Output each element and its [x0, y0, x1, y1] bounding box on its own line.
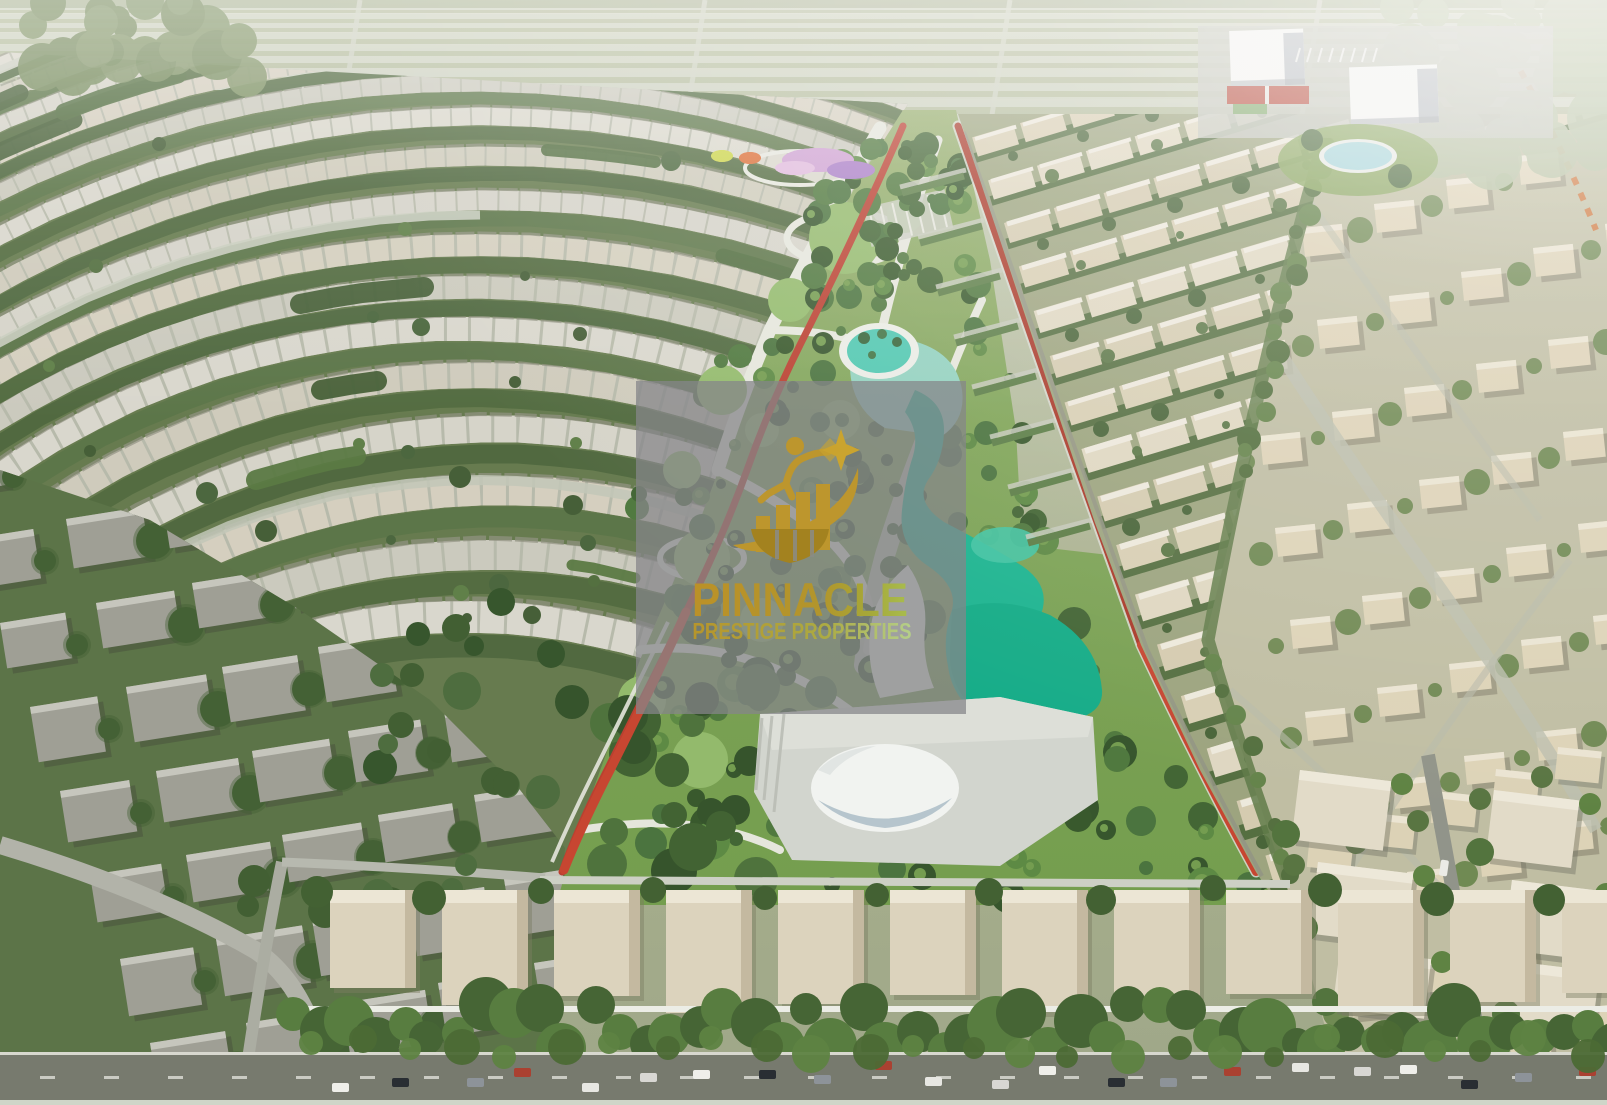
svg-text:PRESTIGE PROPERTIES: PRESTIGE PROPERTIES [693, 618, 912, 644]
